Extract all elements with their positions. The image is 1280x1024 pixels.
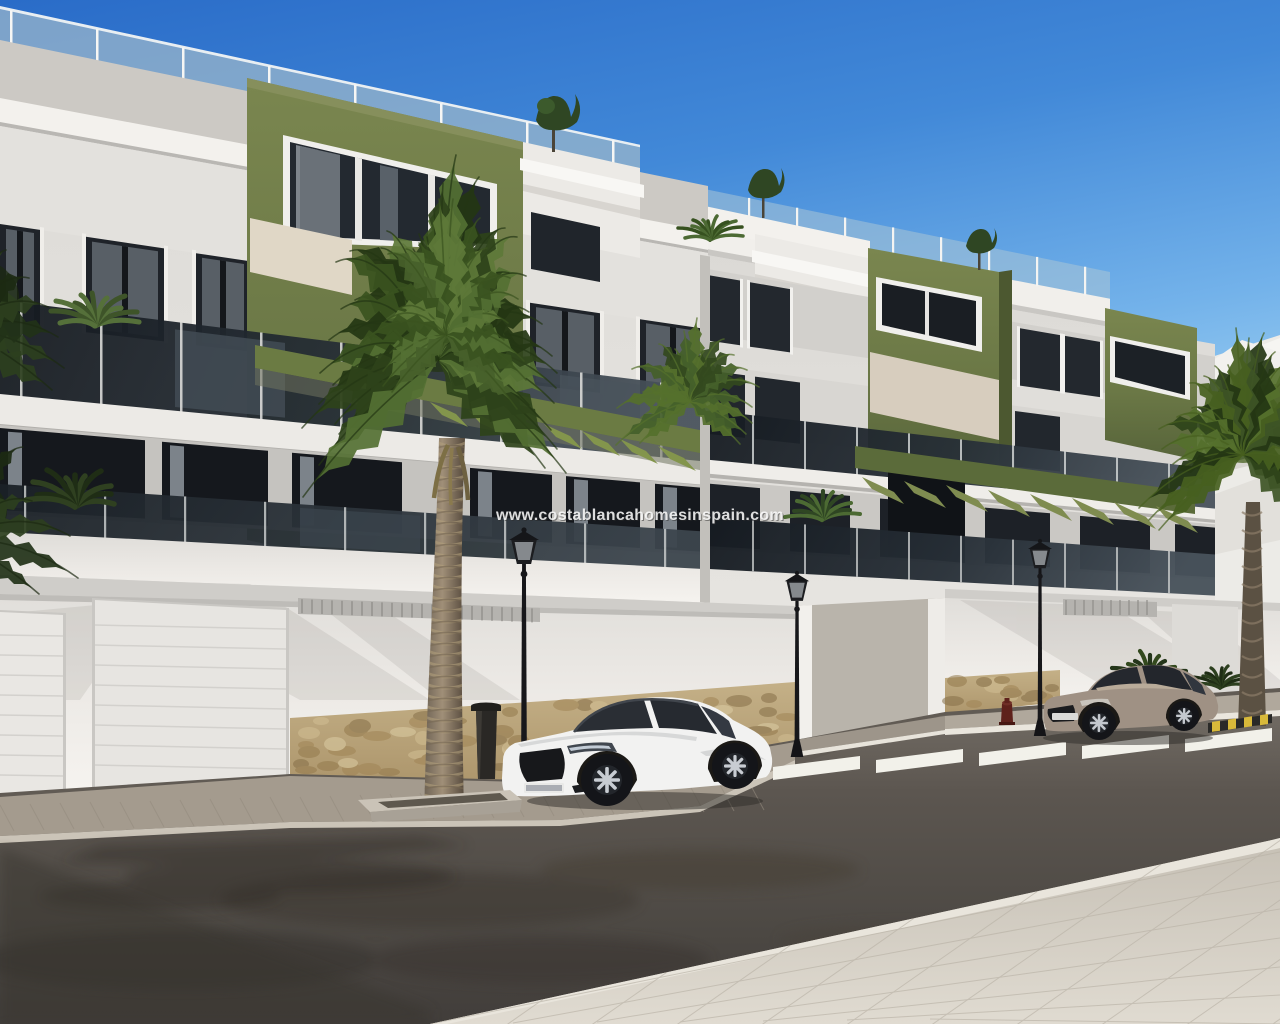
svg-text:www.costablancahomesinspain.co: www.costablancahomesinspain.com [495, 507, 784, 524]
